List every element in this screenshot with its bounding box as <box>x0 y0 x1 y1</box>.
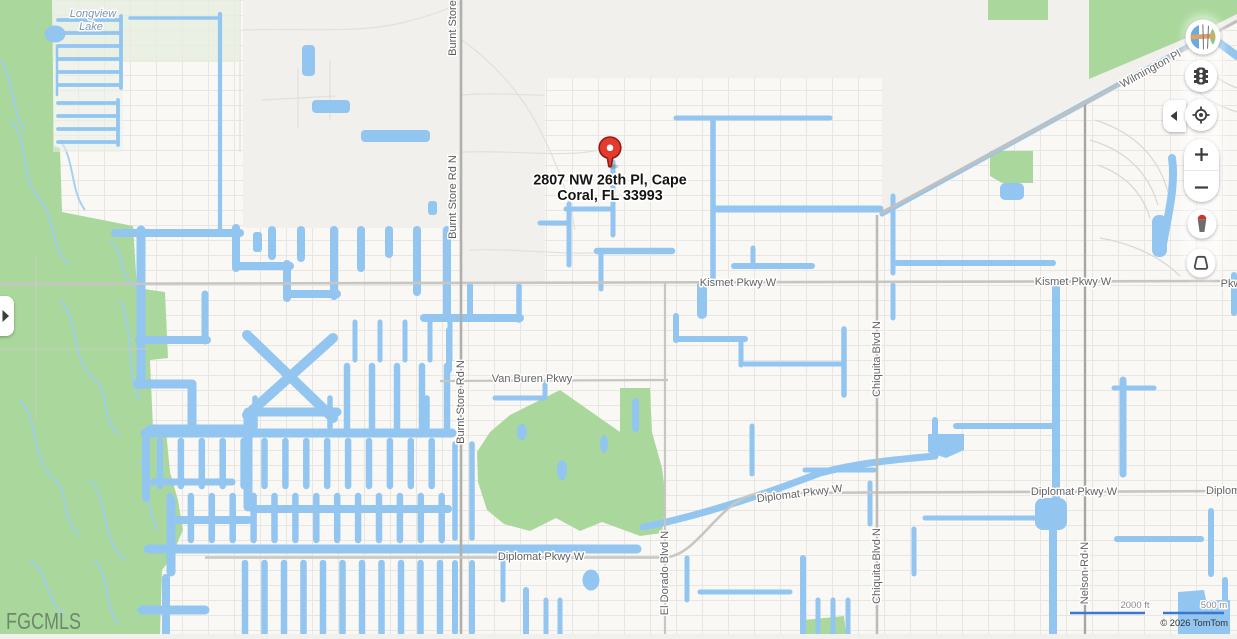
svg-text:Kismet Pkwy W: Kismet Pkwy W <box>1035 276 1112 288</box>
svg-text:2807 NW 26th Pl, Cape: 2807 NW 26th Pl, Cape <box>533 173 686 189</box>
svg-text:Burnt Store: Burnt Store <box>447 0 459 56</box>
svg-text:Lake: Lake <box>79 21 103 33</box>
svg-text:Diplomat Pkwy W: Diplomat Pkwy W <box>498 551 585 563</box>
svg-text:Burnt Store Rd N: Burnt Store Rd N <box>455 360 467 444</box>
svg-text:FGCMLS: FGCMLS <box>6 608 81 634</box>
svg-text:Nelson Rd N: Nelson Rd N <box>1079 542 1091 604</box>
svg-text:Chiquita Blvd N: Chiquita Blvd N <box>871 321 883 397</box>
svg-text:Longview: Longview <box>70 8 118 20</box>
svg-text:Pkw: Pkw <box>1221 278 1237 290</box>
svg-text:Burnt Store Rd N: Burnt Store Rd N <box>447 155 459 239</box>
svg-text:Diplomat Pkw: Diplomat Pkw <box>1206 485 1237 497</box>
svg-text:500 m: 500 m <box>1201 600 1227 611</box>
svg-text:© 2026 TomTom: © 2026 TomTom <box>1160 618 1228 628</box>
svg-text:Coral, FL 33993: Coral, FL 33993 <box>557 188 662 204</box>
svg-text:Van Buren Pkwy: Van Buren Pkwy <box>492 373 573 385</box>
svg-text:Chiquita Blvd N: Chiquita Blvd N <box>871 528 883 604</box>
svg-text:Kismet Pkwy W: Kismet Pkwy W <box>700 277 777 289</box>
svg-text:Diplomat Pkwy W: Diplomat Pkwy W <box>1031 486 1118 498</box>
svg-text:2000 ft: 2000 ft <box>1120 600 1149 611</box>
svg-text:El Dorado Blvd N: El Dorado Blvd N <box>659 531 671 615</box>
